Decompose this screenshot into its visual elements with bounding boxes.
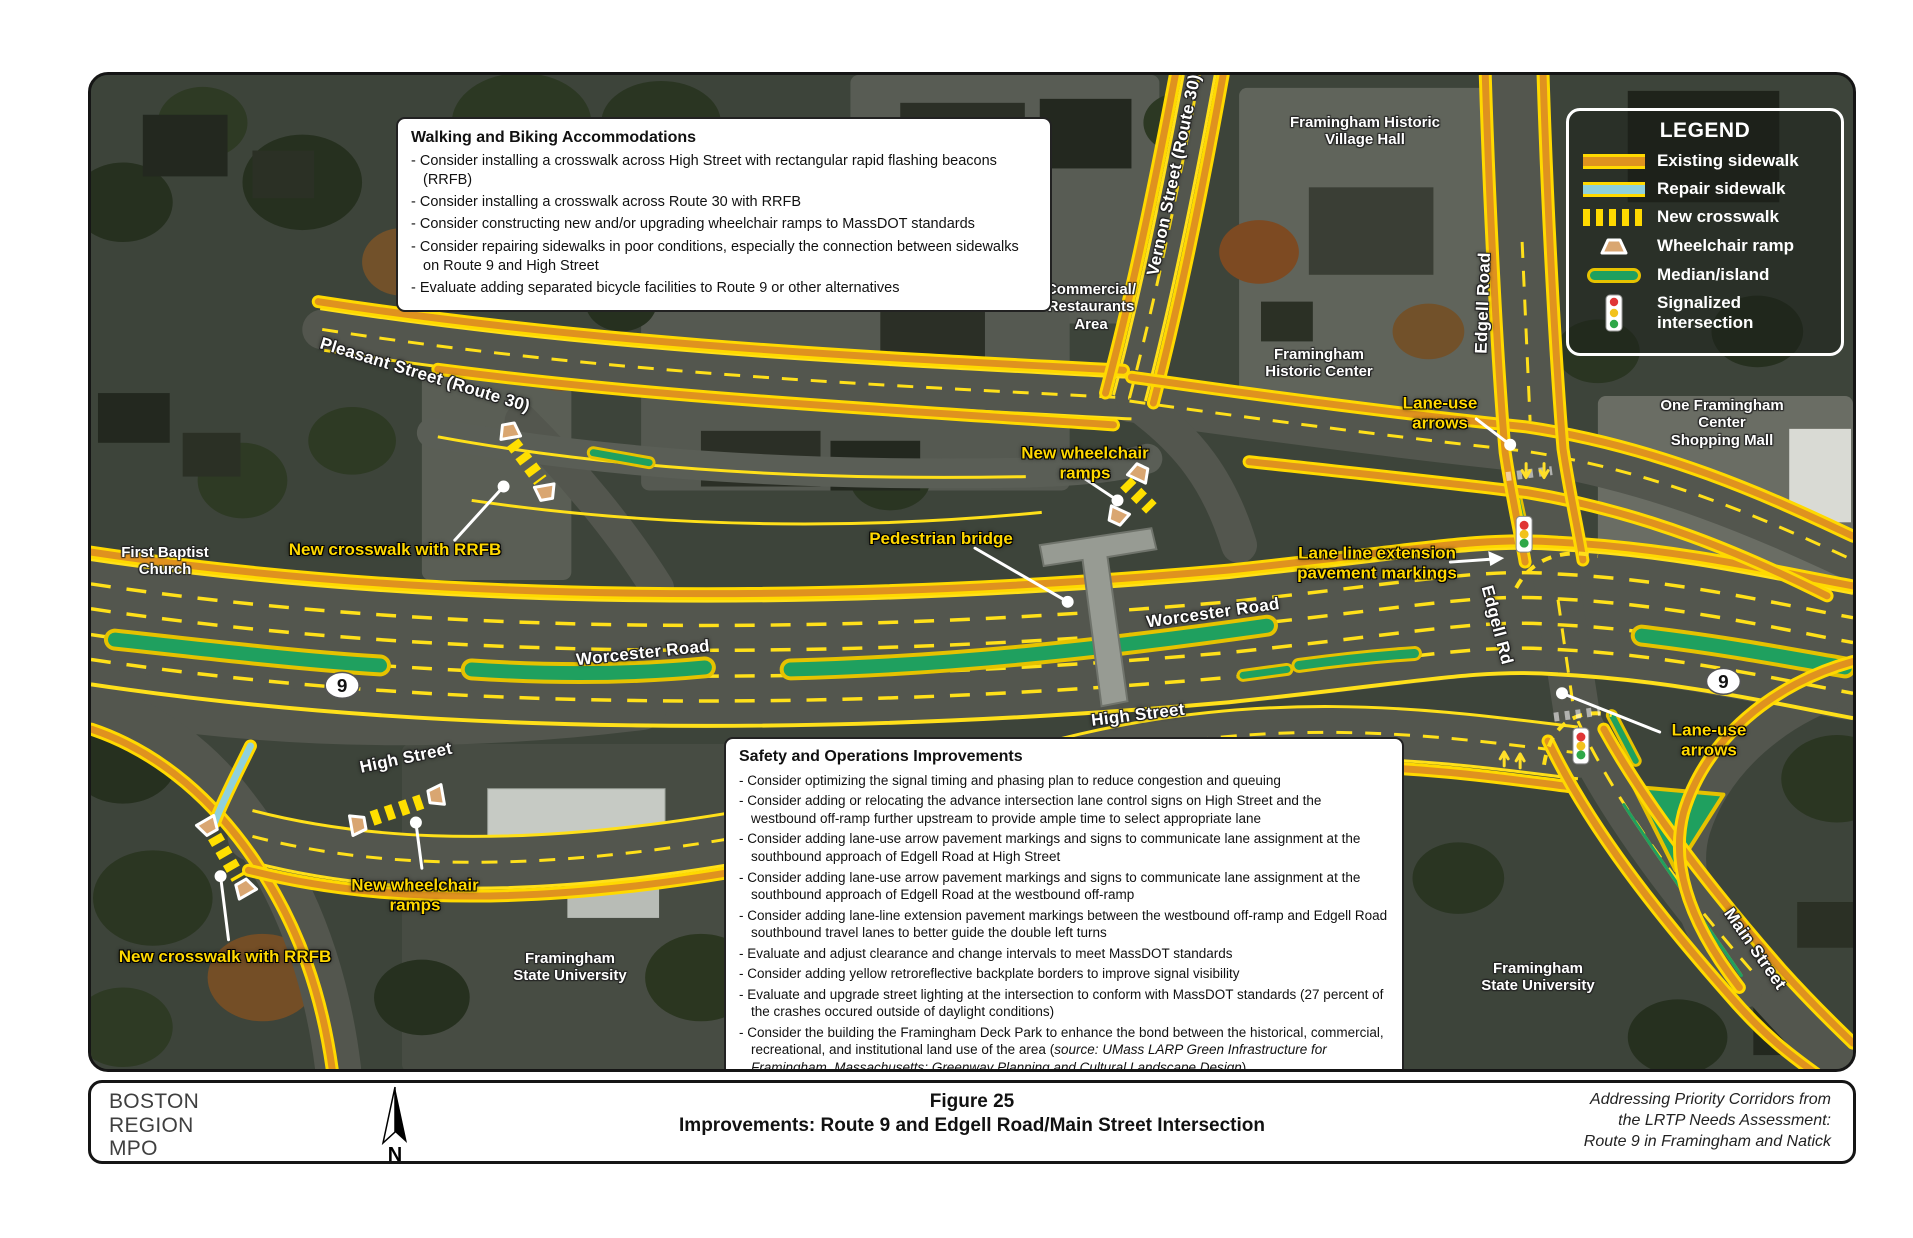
- note-item: Consider adding lane-use arrow pavement …: [739, 869, 1389, 904]
- note-item: Consider adding yellow retroreflective b…: [739, 965, 1389, 983]
- north-arrow-icon: N: [373, 1085, 417, 1165]
- svg-text:9: 9: [337, 676, 348, 697]
- safety-box-list: Consider optimizing the signal timing an…: [739, 772, 1389, 1072]
- wheelchair-ramp-icon: [1583, 235, 1645, 257]
- note-item: Evaluate and upgrade street lighting at …: [739, 986, 1389, 1021]
- svg-text:9: 9: [1718, 672, 1729, 693]
- legend-item: Existing sidewalk: [1583, 151, 1827, 171]
- note-item: Consider installing a crosswalk across R…: [411, 193, 1037, 212]
- walking-biking-notes-box: Walking and Biking Accommodations Consid…: [396, 117, 1052, 312]
- new-crosswalk-swatch: [1583, 209, 1645, 226]
- note-item: Consider adding lane-line extension pave…: [739, 907, 1389, 942]
- legend-title: LEGEND: [1583, 119, 1827, 143]
- legend-item: Median/island: [1583, 265, 1827, 285]
- legend-item: Wheelchair ramp: [1583, 235, 1827, 257]
- org-name: BOSTON REGION MPO: [109, 1090, 199, 1161]
- repair-sidewalk-swatch: [1583, 182, 1645, 197]
- note-item: Consider adding or relocating the advanc…: [739, 792, 1389, 827]
- report-source-note: Addressing Priority Corridors from the L…: [1584, 1090, 1831, 1152]
- traffic-signal-icon: [1516, 516, 1532, 552]
- note-item: Consider optimizing the signal timing an…: [739, 772, 1389, 790]
- note-item: Evaluate and adjust clearance and change…: [739, 945, 1389, 963]
- note-item: Consider installing a crosswalk across H…: [411, 152, 1037, 190]
- traffic-signal-icon: [1583, 294, 1645, 332]
- note-item: Consider repairing sidewalks in poor con…: [411, 238, 1037, 276]
- safety-operations-notes-box: Safety and Operations Improvements Consi…: [724, 737, 1404, 1072]
- note-item: Evaluate adding separated bicycle facili…: [411, 279, 1037, 298]
- figure-number: Figure 25: [679, 1091, 1265, 1113]
- legend-item: New crosswalk: [1583, 207, 1827, 227]
- note-item: Consider adding lane-use arrow pavement …: [739, 830, 1389, 865]
- figure-caption: Figure 25 Improvements: Route 9 and Edge…: [679, 1091, 1265, 1137]
- route-9-shield: 9: [1706, 668, 1740, 694]
- traffic-signal-icon: [1573, 728, 1589, 764]
- existing-sidewalk-swatch: [1583, 154, 1645, 169]
- safety-box-title: Safety and Operations Improvements: [739, 747, 1389, 768]
- legend: LEGEND Existing sidewalk Repair sidewalk…: [1566, 108, 1844, 356]
- legend-item: Repair sidewalk: [1583, 179, 1827, 199]
- walking-box-list: Consider installing a crosswalk across H…: [411, 152, 1037, 298]
- figure-title: Improvements: Route 9 and Edgell Road/Ma…: [679, 1115, 1265, 1137]
- median-island-swatch: [1583, 268, 1645, 283]
- legend-item: Signalized intersection: [1583, 293, 1827, 333]
- route-9-shield: 9: [325, 672, 359, 698]
- map-panel: 9 9 Pleasant Street (Route 30) Vernon St…: [88, 72, 1856, 1072]
- svg-text:N: N: [388, 1144, 402, 1165]
- footer-bar: BOSTON REGION MPO N Figure 25 Improvemen…: [88, 1080, 1856, 1164]
- walking-box-title: Walking and Biking Accommodations: [411, 127, 1037, 148]
- note-item: Consider constructing new and/or upgradi…: [411, 215, 1037, 234]
- note-item: Consider the building the Framingham Dec…: [739, 1024, 1389, 1072]
